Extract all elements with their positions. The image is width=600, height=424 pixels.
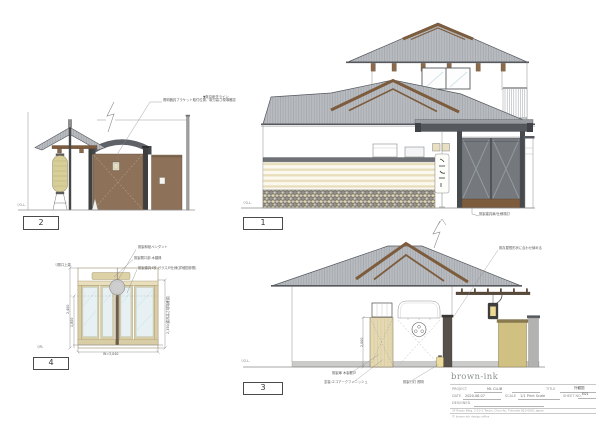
d4-top-label: ▽開口上端 (55, 264, 71, 267)
pergola-beam (456, 288, 530, 294)
scale-value: 1/1 Print Scale (520, 394, 545, 398)
d4-fl-label: ▽FL (37, 346, 43, 349)
elevation-2-graphic (15, 90, 230, 230)
d4-dim-right: 2,350(建具高さ現場確認) (167, 296, 170, 334)
elevation-1-graphic (235, 20, 600, 232)
drawing-number-2: 2 (23, 216, 59, 230)
designed-label: DESIGNED (452, 401, 470, 405)
wooden-door (370, 318, 393, 368)
wall-vents (373, 144, 424, 157)
bamboo-fence (497, 315, 540, 367)
gate-structure (88, 140, 152, 211)
lower-roof (261, 80, 535, 126)
project-value: ML CLUB (487, 387, 502, 391)
hanging-lamp (488, 295, 502, 319)
side-fence (152, 155, 183, 210)
d4-board-note: 既製開口部 木額縁 (134, 257, 161, 260)
gate-side-pilaster (524, 136, 535, 208)
d4-dim-outer: 2,400 (67, 305, 70, 314)
date-value: 2020.06.07 (465, 394, 485, 398)
company-address: 3F Rosso Bldg. 2-10-1 Tenjin, Chuo-ku, F… (452, 409, 544, 412)
architectural-drawing-sheet: 照明器具ブラケット取付位置、取付高さ現場確認 ▽G.L. ▼既存軒先ライン 既製… (0, 0, 600, 424)
title-block: brown-ink PROJECT ML CLUB TITLE 外観図 DATE… (448, 371, 598, 423)
upper-roof (346, 23, 529, 71)
d4-pendant-note: 既製和紙ペンダント (138, 246, 168, 249)
right-pole (186, 115, 190, 210)
d1-eave-note: ▼既存軒先ライン (203, 96, 229, 99)
d3-roof-note: 既存屋根形状に合わせ納める (499, 247, 542, 250)
company-logo: brown-ink (451, 372, 498, 382)
drawing-number-3: 3 (243, 382, 283, 395)
d3-gl-label: ▽G.L. (241, 360, 250, 363)
title-value: 外観図 (574, 385, 584, 390)
transom-window (372, 303, 392, 317)
boundary-wall (263, 158, 435, 209)
d2-bracket-note: 照明器具ブラケット取付位置、取付高さ現場確認 (163, 99, 236, 102)
upper-window (422, 68, 470, 89)
gate-note-leader (472, 208, 479, 216)
chochin-lantern (53, 149, 68, 210)
d4-dim-inner: 1,800 (71, 318, 74, 327)
d4-dim-width: W=3,040 (103, 353, 118, 356)
break-mark (107, 102, 114, 132)
copyright-line: © brown-ink design office (452, 415, 489, 418)
title-label: TITLE (546, 387, 555, 391)
sheet-no-value: E01 (582, 392, 589, 396)
scale-label: SCALE (505, 394, 516, 398)
family-crest (412, 323, 426, 337)
project-label: PROJECT (452, 387, 467, 391)
d1-gate-note: 既製建具扉/仕様検討 (479, 213, 510, 216)
entry-opening (398, 301, 440, 366)
drawing-number-4: 4 (33, 357, 69, 370)
date-label: DATE (452, 394, 461, 398)
d3-door-note: 既製扉 木製框戸 (332, 372, 356, 375)
d1-gl-label: ▽G.L. (243, 202, 252, 205)
section-break-mark (430, 220, 446, 250)
d4-doors-note: 既製建具4枚 ガラス戸仕様(詳細図参照) (138, 267, 196, 270)
d2-gl-label: ▽G.L. (17, 204, 26, 207)
drawing-number-1: 1 (243, 217, 283, 230)
d3-paint-note: 塗装:エコアークフィニッシュ (324, 381, 368, 384)
d3-dim-left: 2,000 (361, 338, 364, 347)
d3-lantern-note: 既製行灯 照明 (403, 381, 424, 384)
elevation-4-graphic (25, 235, 220, 370)
roof (271, 244, 522, 286)
entrance-banner (435, 132, 449, 207)
